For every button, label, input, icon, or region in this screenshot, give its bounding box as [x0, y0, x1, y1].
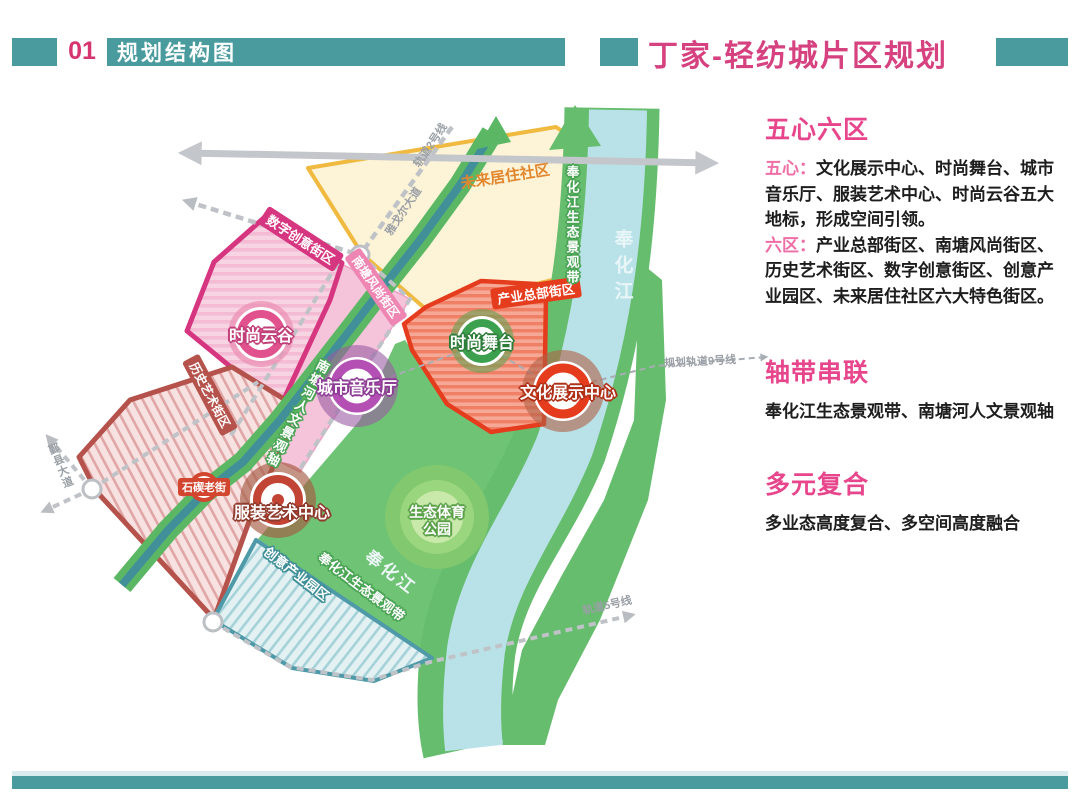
footer-bar [12, 776, 1068, 789]
road-node-west [83, 480, 101, 498]
five-hearts-paragraph: 五心：文化展示中心、时尚舞台、城市音乐厅、服装艺术中心、时尚云谷五大地标，形成空… [765, 156, 1057, 233]
water-label-river-top: 奉化江 [609, 229, 636, 307]
six-districts-lead: 六区： [765, 236, 816, 255]
landmark-label-fashion-stage: 时尚舞台 [450, 329, 514, 353]
axes-text: 奉化江生态景观带、南塘河人文景观轴 [765, 399, 1057, 425]
mixed-text: 多业态高度复合、多空间高度融合 [765, 511, 1057, 537]
water-label-eco-belt-top: 奉化江生态景观带 [563, 165, 582, 285]
panel-heading-axes: 轴带串联 [765, 353, 1057, 389]
panel-heading-five-hearts: 五心六区 [765, 110, 1057, 146]
info-panel: 五心六区 五心：文化展示中心、时尚舞台、城市音乐厅、服装艺术中心、时尚云谷五大地… [765, 110, 1057, 536]
landmark-label-fashion-cloud-valley: 时尚云谷 [229, 322, 293, 346]
landmark-label-fashion-art-center: 服装艺术中心 [234, 499, 330, 523]
landmark-label-shiqi-old-street: 石碶老街 [178, 478, 230, 496]
landmark-label-city-concert-hall: 城市音乐厅 [317, 374, 397, 398]
landmark-label-eco-park-line2: 公园 [423, 519, 451, 539]
five-hearts-lead: 五心： [765, 159, 816, 178]
slide: 01 规划结构图 丁家-轻纺城片区规划 [0, 0, 1080, 795]
landmark-label-culture-exhibition: 文化展示中心 [520, 379, 616, 403]
six-districts-paragraph: 六区：产业总部街区、南塘风尚街区、历史艺术街区、数字创意街区、创意产业园区、未来… [765, 233, 1057, 310]
road-node-south [204, 613, 222, 631]
panel-heading-mixed: 多元复合 [765, 465, 1057, 501]
